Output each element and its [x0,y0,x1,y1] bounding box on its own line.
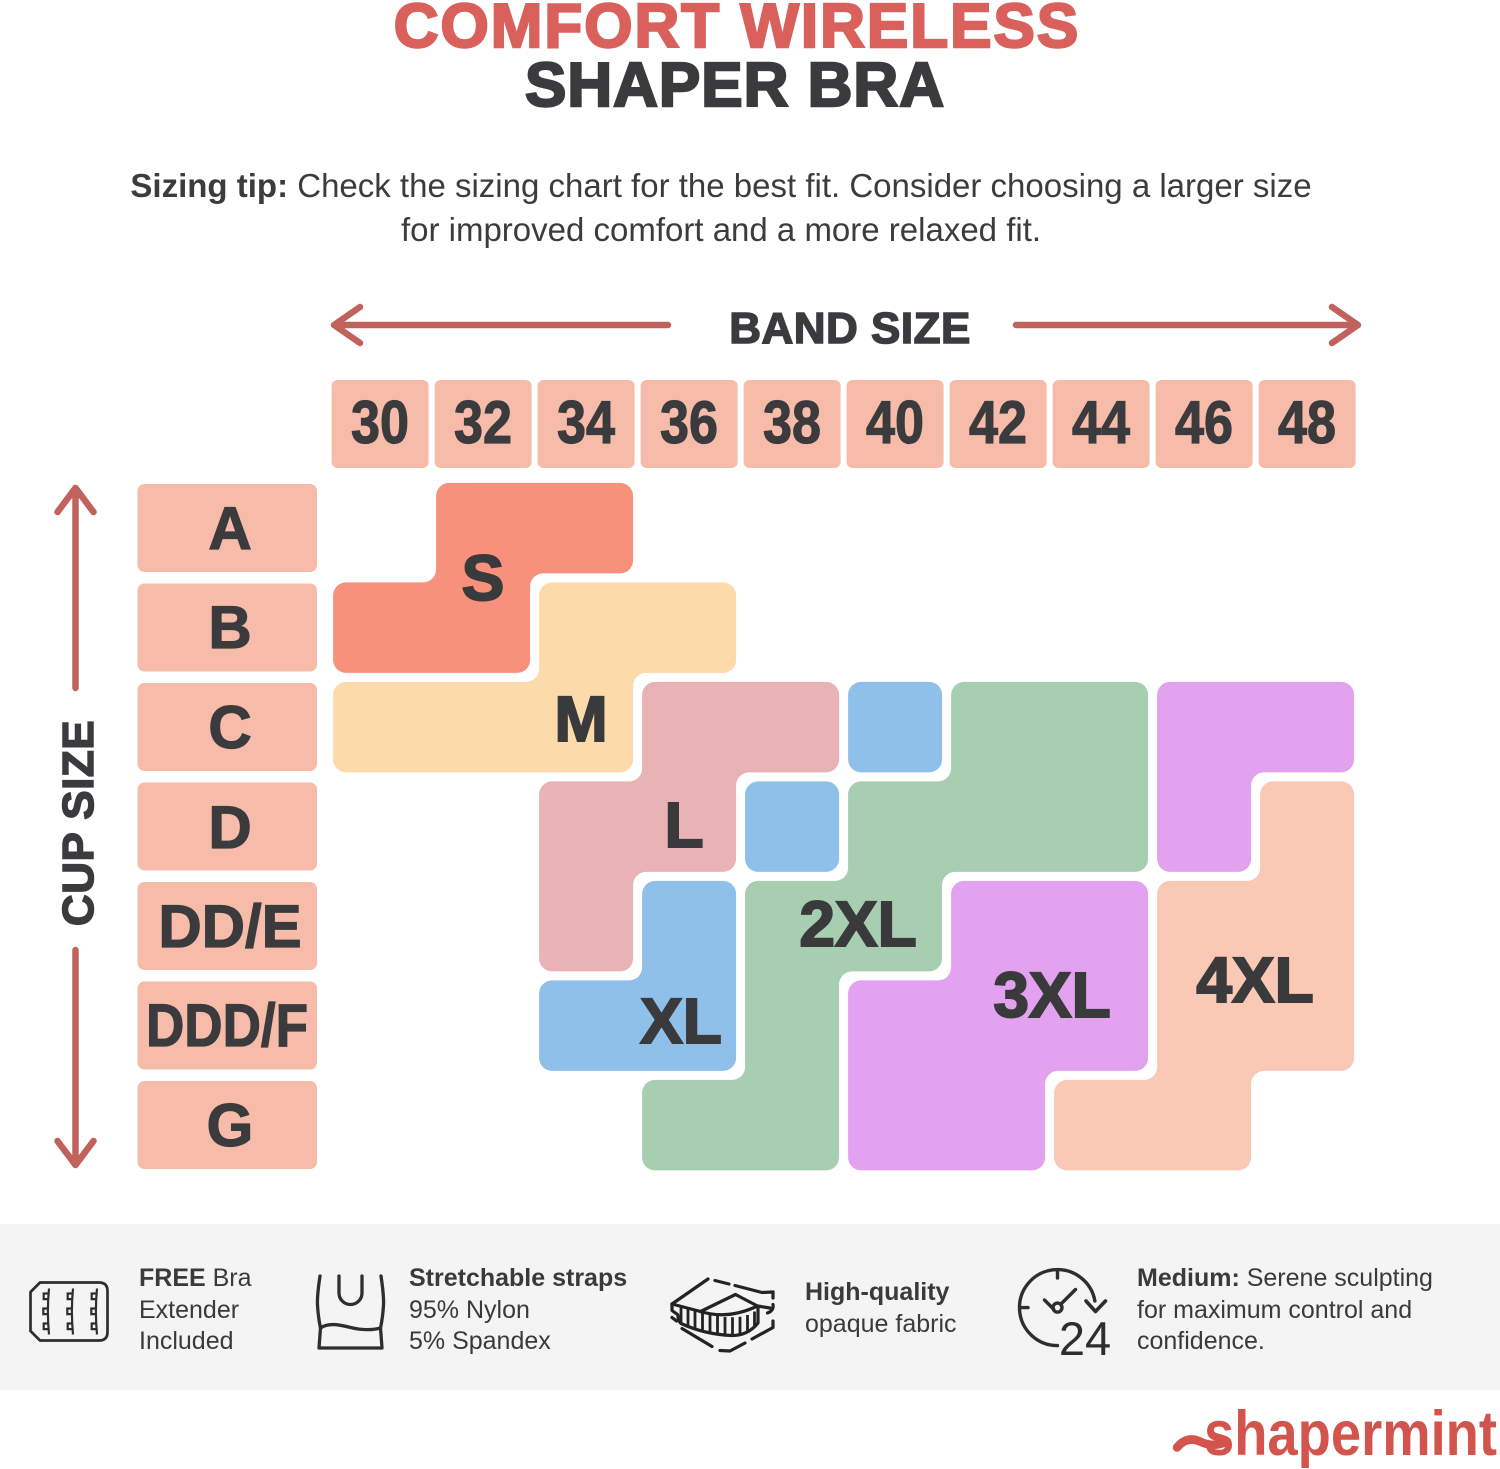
svg-text:S: S [462,542,505,614]
svg-text:40: 40 [866,389,924,456]
svg-text:DD/E: DD/E [158,893,301,960]
svg-text:32: 32 [454,389,512,456]
svg-text:30: 30 [351,389,409,456]
svg-text:BAND SIZE: BAND SIZE [729,304,971,353]
svg-text:34: 34 [557,389,616,456]
svg-text:44: 44 [1072,389,1131,456]
svg-text:4XL: 4XL [1196,944,1313,1016]
svg-text:48: 48 [1278,389,1336,456]
svg-text:L: L [664,789,703,861]
svg-text:M: M [554,683,607,755]
svg-text:shapermint: shapermint [1204,1399,1497,1469]
svg-text:3XL: 3XL [993,959,1110,1031]
svg-text:CUP SIZE: CUP SIZE [54,720,103,926]
svg-text:D: D [208,794,251,861]
svg-text:24: 24 [1059,1312,1111,1365]
svg-text:XL: XL [640,985,722,1057]
svg-text:46: 46 [1175,389,1233,456]
svg-text:36: 36 [660,389,718,456]
svg-text:G: G [207,1092,254,1159]
svg-text:A: A [208,495,251,562]
svg-text:2XL: 2XL [799,888,916,960]
svg-text:DDD/F: DDD/F [146,992,308,1059]
svg-text:42: 42 [969,389,1027,456]
svg-text:B: B [208,594,251,661]
svg-text:38: 38 [763,389,821,456]
svg-text:C: C [208,694,251,761]
